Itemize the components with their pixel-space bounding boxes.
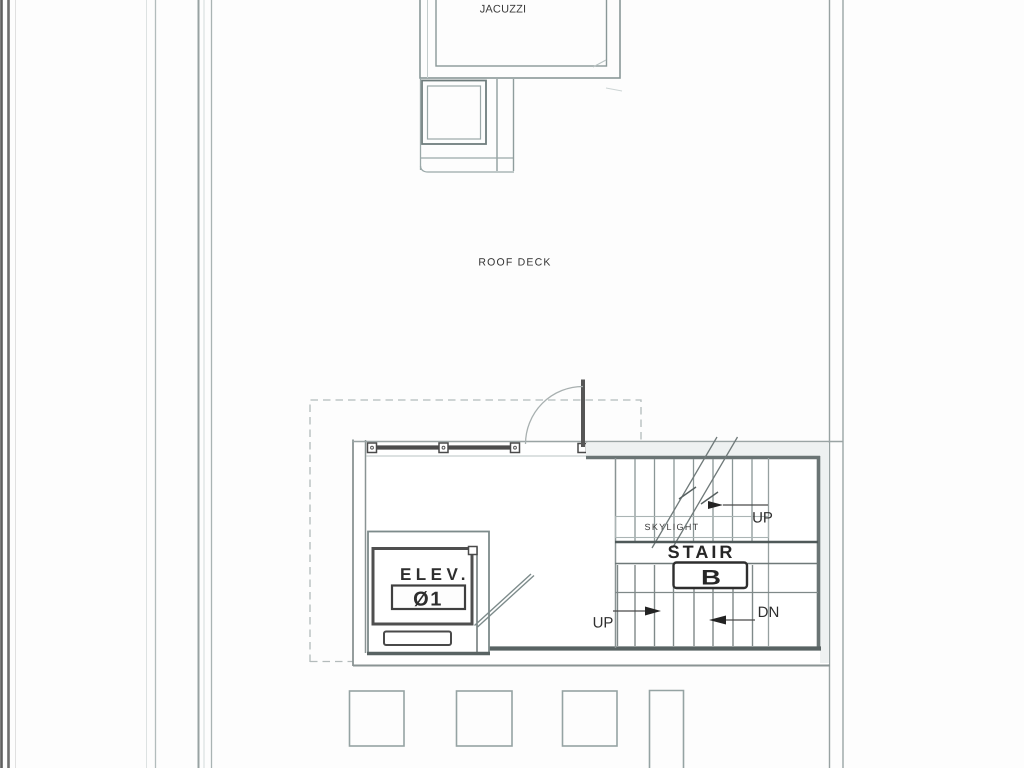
svg-text:ELEV.: ELEV. [400,565,470,584]
svg-text:UP: UP [752,510,773,527]
svg-text:DN: DN [758,604,780,621]
svg-text:SKYLIGHT: SKYLIGHT [645,522,700,532]
svg-text:UP: UP [593,615,614,632]
svg-text:STAIR: STAIR [668,542,736,562]
svg-text:ROOF DECK: ROOF DECK [478,257,551,269]
svg-text:JACUZZI: JACUZZI [480,4,527,16]
svg-text:B: B [701,567,721,590]
svg-text:Ø1: Ø1 [413,589,443,611]
